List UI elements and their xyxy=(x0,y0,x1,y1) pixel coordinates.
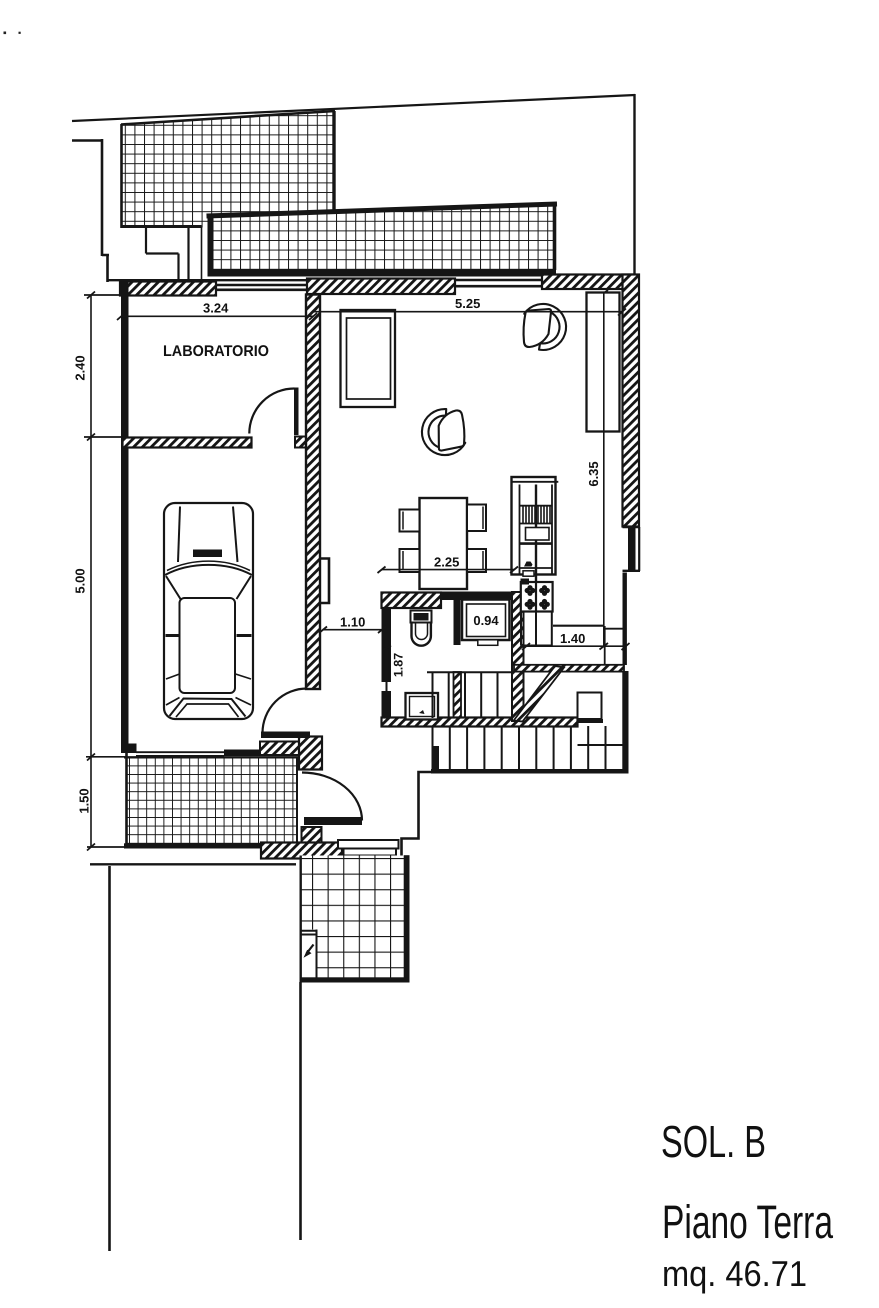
svg-text:2.25: 2.25 xyxy=(434,555,459,570)
svg-text:mq. 46.71: mq. 46.71 xyxy=(662,1253,807,1294)
svg-text:5.25: 5.25 xyxy=(455,296,480,311)
svg-text:Piano Terra: Piano Terra xyxy=(662,1195,834,1248)
svg-text:1.10: 1.10 xyxy=(340,615,365,630)
svg-text:3.24: 3.24 xyxy=(203,301,229,316)
svg-text:6.35: 6.35 xyxy=(586,461,601,486)
svg-text:1.50: 1.50 xyxy=(77,788,92,813)
svg-text:2.40: 2.40 xyxy=(73,355,88,380)
svg-text:5.00: 5.00 xyxy=(73,568,88,593)
svg-text:LABORATORIO: LABORATORIO xyxy=(163,343,269,360)
svg-text:1.87: 1.87 xyxy=(392,653,406,677)
svg-text:SOL. B: SOL. B xyxy=(661,1116,766,1167)
svg-text:0.94: 0.94 xyxy=(473,613,499,628)
svg-text:1.40: 1.40 xyxy=(560,631,585,646)
